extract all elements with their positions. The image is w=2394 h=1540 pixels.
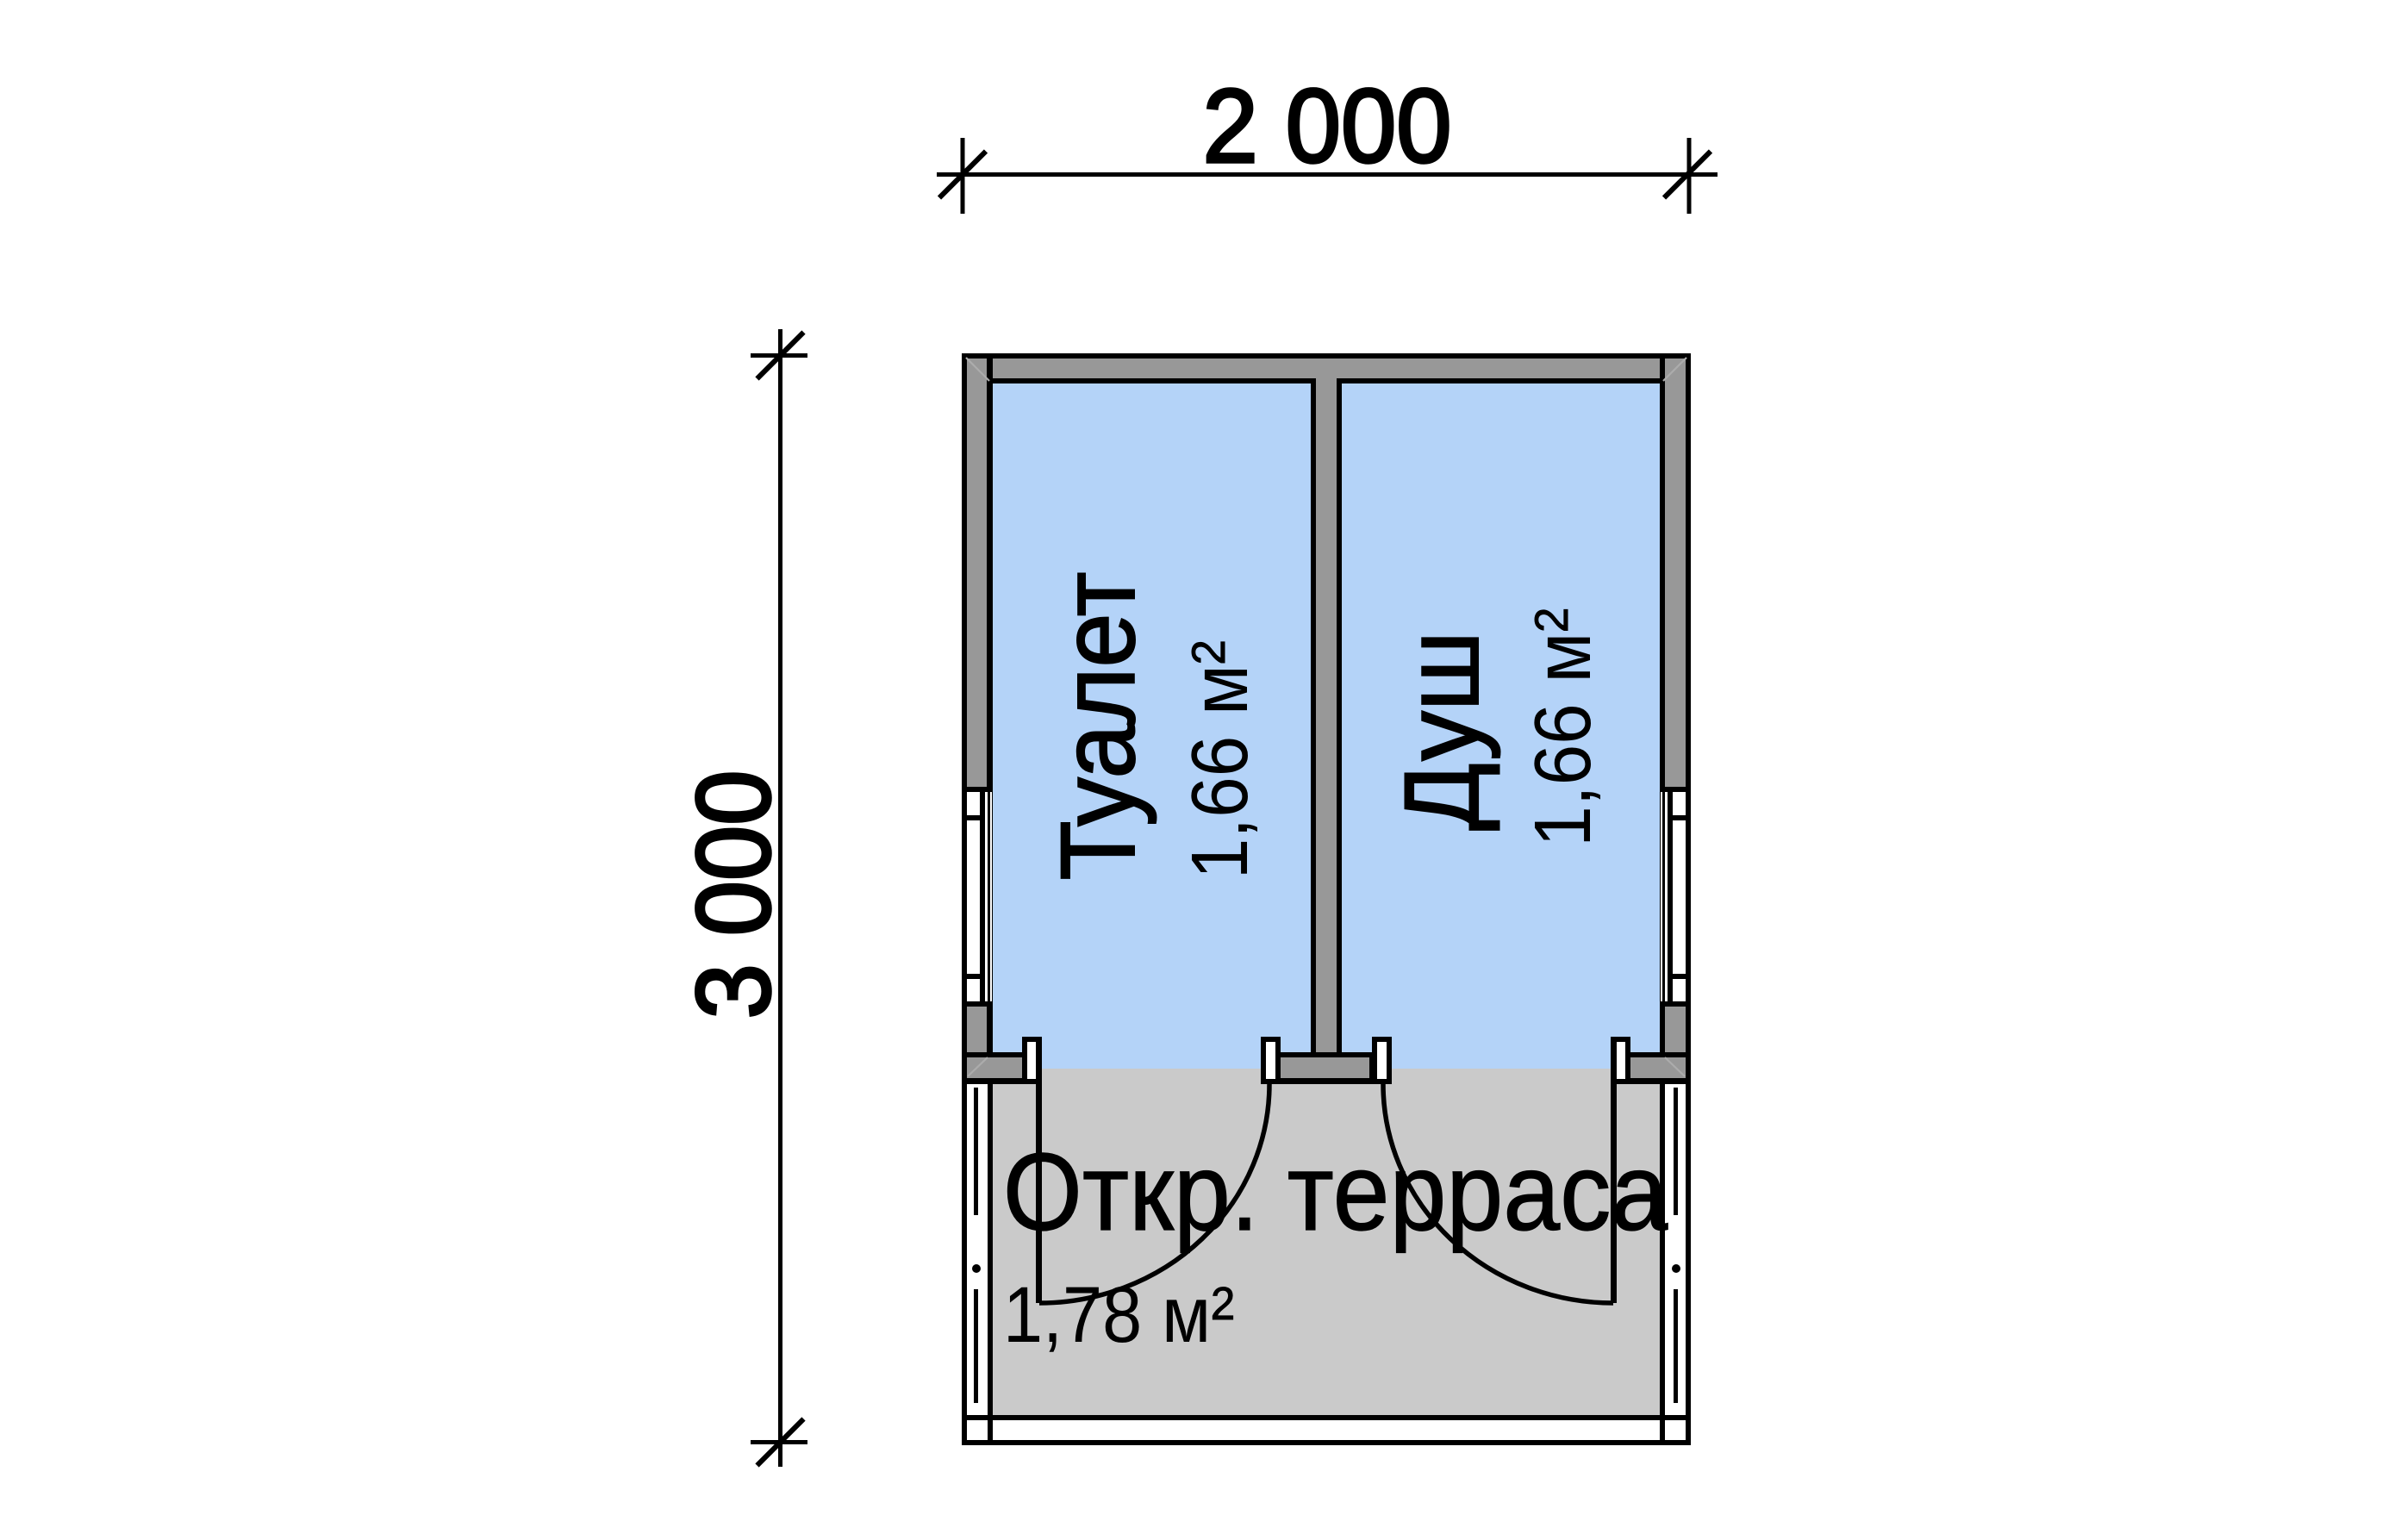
svg-text:1,66 м²: 1,66 м² bbox=[1175, 640, 1264, 880]
svg-text:1,66 м²: 1,66 м² bbox=[1518, 608, 1607, 847]
svg-text:Душ: Душ bbox=[1383, 631, 1501, 830]
svg-text:2 000: 2 000 bbox=[1202, 67, 1451, 185]
svg-text:3 000: 3 000 bbox=[675, 770, 793, 1019]
svg-text:Откр. терраса: Откр. терраса bbox=[1003, 1132, 1668, 1254]
svg-text:Туалет: Туалет bbox=[1039, 571, 1157, 880]
svg-text:1,78 м²: 1,78 м² bbox=[1003, 1270, 1235, 1359]
